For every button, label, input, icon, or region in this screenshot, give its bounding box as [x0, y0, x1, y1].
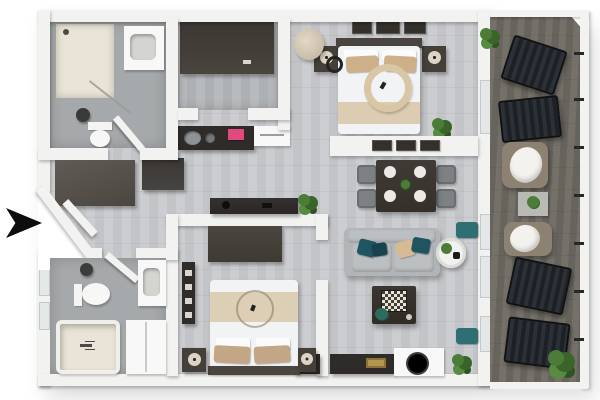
plate [384, 190, 396, 202]
railing-post [574, 338, 584, 341]
shower [56, 24, 114, 98]
cabinet-seam [145, 322, 147, 372]
bedroom2-wardrobe [208, 226, 282, 262]
plant [452, 354, 464, 366]
table-lamp-icon [428, 51, 441, 64]
balcony-table-plant [527, 196, 539, 208]
round-chair [294, 28, 324, 60]
closet-wardrobe [180, 22, 274, 74]
dining-chair [436, 165, 456, 184]
entrance-arrow-icon [6, 206, 42, 240]
sofa-pillow [411, 237, 431, 255]
deck-lounger [498, 95, 562, 143]
dining-chair [357, 189, 377, 208]
bathroom1-sink [130, 34, 156, 60]
table-centerpiece-plant [401, 180, 410, 189]
wall-bathroom1-right [166, 18, 178, 158]
shower-head-icon [63, 29, 69, 35]
sideboard-gold-tray [366, 358, 386, 368]
toilet-bowl [82, 283, 110, 305]
balcony-plant [480, 28, 492, 40]
kitchen-cabinet-handle [260, 134, 284, 136]
wall-outer-left-upper [38, 10, 50, 192]
bed-pillow [214, 345, 251, 364]
window-glass [39, 268, 50, 296]
wall-bedroom2-top [166, 214, 328, 226]
plate [414, 190, 426, 202]
coffee-table-plant [375, 308, 388, 320]
wall-bathroom1-bottom-a [38, 148, 108, 160]
table-lamp-icon [301, 353, 313, 365]
wall-bathroom1-bottom-b [140, 148, 178, 160]
balcony-plant-large [548, 350, 564, 366]
plant [298, 194, 310, 206]
bed-pillow [254, 345, 291, 364]
table-lamp-icon [188, 353, 201, 366]
railing-post [574, 242, 584, 245]
window-glass [39, 302, 50, 330]
wall-art [352, 21, 372, 34]
bed2-headboard [208, 366, 300, 375]
sideboard-item [262, 203, 272, 208]
kitchen-sink [184, 131, 201, 145]
wall-art [420, 140, 440, 151]
toilet-bowl [90, 130, 110, 147]
wall-bedroom2-right-a [316, 214, 328, 240]
window-bench [456, 222, 478, 238]
wardrobe-handle [243, 60, 251, 64]
tub-faucet-icon [80, 344, 92, 347]
sideboard-item [222, 201, 230, 209]
column-flue [406, 352, 429, 375]
toilet-tank [88, 122, 112, 130]
kitchen-cooktop-pink [228, 129, 244, 140]
waste-bin [76, 108, 90, 122]
plant [432, 118, 444, 130]
waste-bin [80, 263, 93, 276]
balcony-railing-right [580, 10, 589, 388]
wall-art [376, 21, 400, 34]
shelf-items [185, 268, 192, 318]
wall-art [404, 21, 426, 34]
dining-chair [357, 165, 377, 184]
plate [384, 166, 396, 178]
wall-outer-top [38, 10, 492, 22]
railing-post [574, 290, 584, 293]
wall-bathroom2-right [166, 214, 178, 376]
dining-chair [436, 189, 456, 208]
bed2-throw-ring [236, 290, 274, 328]
railing-post [574, 194, 584, 197]
sofa-pillow [371, 242, 388, 257]
window-bench [456, 328, 478, 344]
railing-post [574, 98, 584, 101]
railing-post [574, 146, 584, 149]
kitchen-pot [205, 133, 215, 143]
wall-art [396, 140, 416, 151]
side-table-plant [441, 243, 452, 254]
coffee-table-bowl [406, 314, 412, 320]
wall-art [372, 140, 392, 151]
railing-post [574, 52, 584, 55]
plate [414, 166, 426, 178]
wall-closet-bottom-b [248, 108, 290, 120]
balcony-railing-bottom [490, 382, 588, 389]
bathtub [56, 320, 120, 374]
bathroom2-sink [143, 268, 160, 296]
floor-lamp-icon [326, 56, 343, 73]
bed-breakfast-tray [364, 64, 412, 112]
wall-closet-bottom-a [178, 108, 198, 120]
round-side-table [436, 238, 466, 268]
floor-plan-render [0, 0, 600, 400]
chessboard [382, 291, 406, 311]
side-table-mug [453, 252, 460, 259]
kitchen-tall-cabinet [142, 158, 184, 190]
toilet-tank [74, 284, 82, 306]
balcony-railing-top [490, 10, 588, 17]
